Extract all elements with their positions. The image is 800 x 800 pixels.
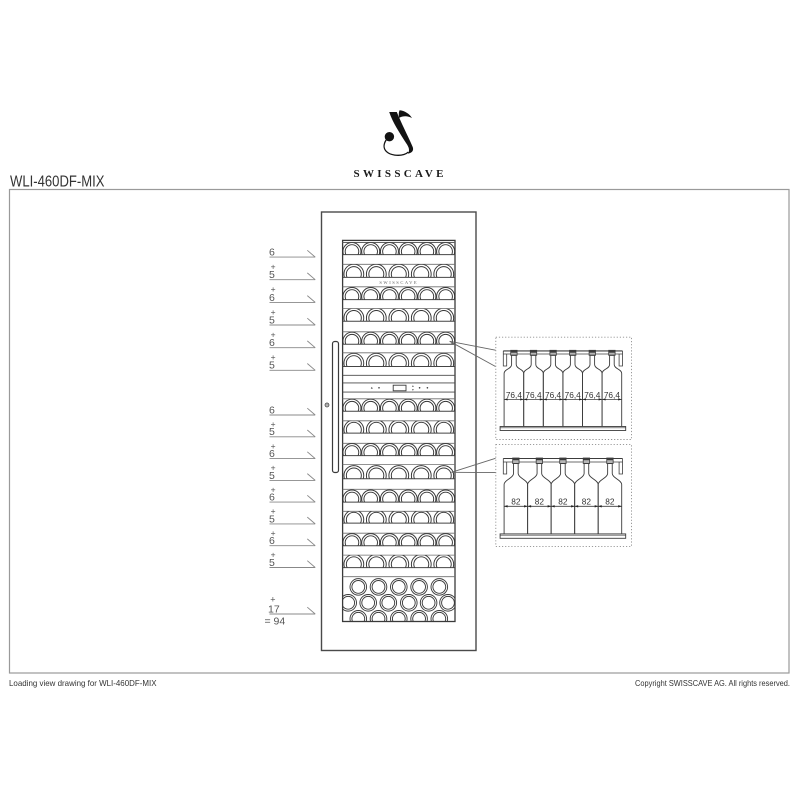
svg-text:+: +	[271, 550, 276, 560]
svg-text:+: +	[271, 484, 276, 494]
svg-text:+: +	[271, 506, 276, 516]
svg-text:+: +	[271, 528, 276, 538]
svg-text:+: +	[271, 330, 276, 340]
svg-text:+: +	[271, 463, 276, 473]
svg-text:SWISSCAVE: SWISSCAVE	[379, 280, 418, 285]
svg-text:82: 82	[535, 497, 545, 507]
svg-text:6: 6	[269, 247, 275, 259]
svg-text:SWISSCAVE: SWISSCAVE	[354, 168, 447, 180]
svg-text:+: +	[271, 262, 276, 272]
svg-text:6: 6	[269, 404, 275, 416]
svg-text:76,4: 76,4	[545, 390, 562, 400]
svg-text:Loading view drawing for WLI-4: Loading view drawing for WLI-460DF-MIX	[9, 678, 157, 688]
svg-text:+: +	[271, 307, 276, 317]
svg-text:82: 82	[511, 497, 521, 507]
svg-text:= 94: = 94	[265, 616, 286, 628]
svg-text:+: +	[271, 284, 276, 294]
svg-text:17: 17	[268, 603, 280, 615]
svg-text:+: +	[271, 419, 276, 429]
svg-text:+: +	[271, 441, 276, 451]
svg-text:82: 82	[558, 497, 568, 507]
svg-text:+: +	[271, 352, 276, 362]
svg-text:76,4: 76,4	[584, 390, 601, 400]
svg-text:76,4: 76,4	[506, 390, 523, 400]
svg-text:76,4: 76,4	[604, 390, 621, 400]
svg-text:82: 82	[605, 497, 615, 507]
svg-text:76,4: 76,4	[565, 390, 582, 400]
svg-text:76,4: 76,4	[525, 390, 542, 400]
svg-text:Copyright SWISSCAVE AG. All ri: Copyright SWISSCAVE AG. All rights reser…	[635, 678, 790, 688]
svg-text:WLI-460DF-MIX: WLI-460DF-MIX	[10, 174, 105, 191]
svg-text:82: 82	[582, 497, 592, 507]
